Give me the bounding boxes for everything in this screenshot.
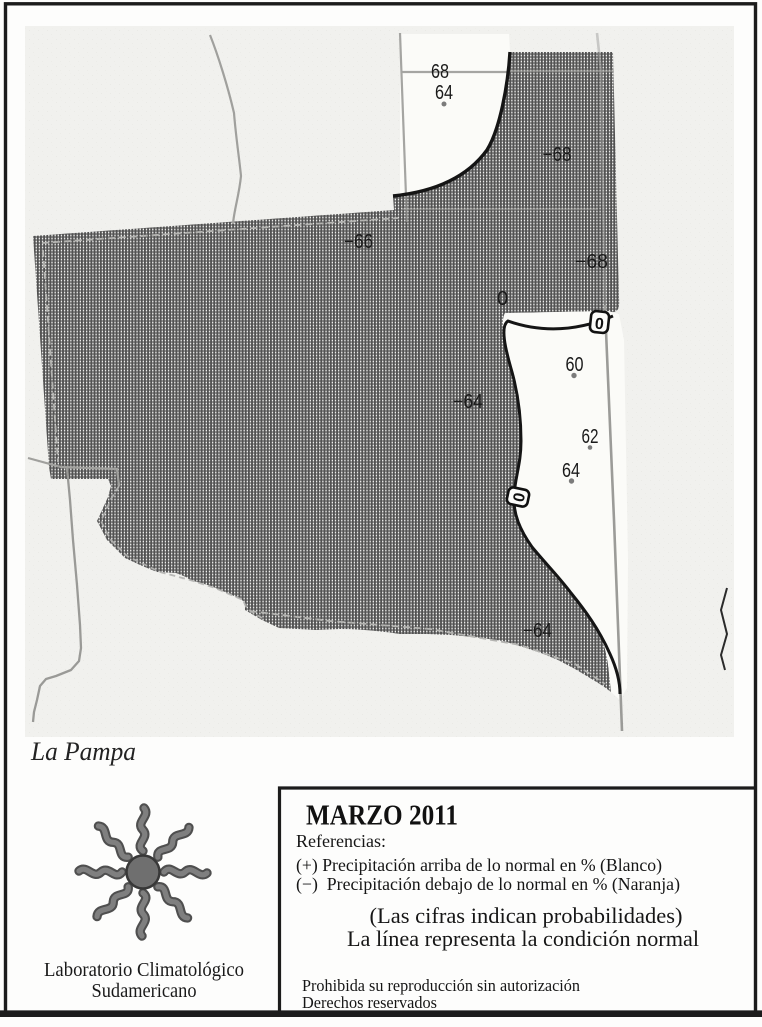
svg-text:64: 64 (562, 460, 580, 482)
svg-text:60: 60 (566, 354, 584, 376)
svg-text:0: 0 (594, 316, 605, 334)
svg-text:(Las cifras indican probabilid: (Las cifras indican probabilidades) (370, 903, 683, 928)
svg-text:Derechos reservados: Derechos reservados (302, 993, 437, 1012)
svg-text:(−) Precipitación debajo de l: (−) Precipitación debajo de lo normal en… (296, 874, 680, 895)
svg-text:−68: −68 (575, 251, 608, 273)
svg-text:−66: −66 (344, 231, 373, 253)
svg-text:Laboratorio Climatológico: Laboratorio Climatológico (44, 959, 244, 981)
svg-text:(+) Precipitación arriba de lo: (+) Precipitación arriba de lo normal en… (296, 855, 662, 876)
svg-text:−68: −68 (543, 144, 572, 166)
svg-text:MARZO 2011: MARZO 2011 (306, 801, 458, 832)
svg-text:−64: −64 (523, 620, 552, 642)
svg-text:La línea representa la condici: La línea representa la condición normal (347, 926, 699, 951)
svg-text:La Pampa: La Pampa (30, 737, 136, 766)
svg-text:0: 0 (497, 288, 508, 310)
svg-text:Referencias:: Referencias: (296, 831, 386, 851)
svg-text:−64: −64 (453, 391, 483, 413)
svg-text:Sudamericano: Sudamericano (92, 980, 197, 1002)
svg-text:68: 68 (431, 61, 449, 83)
svg-text:64: 64 (435, 82, 453, 104)
svg-text:62: 62 (582, 426, 599, 448)
